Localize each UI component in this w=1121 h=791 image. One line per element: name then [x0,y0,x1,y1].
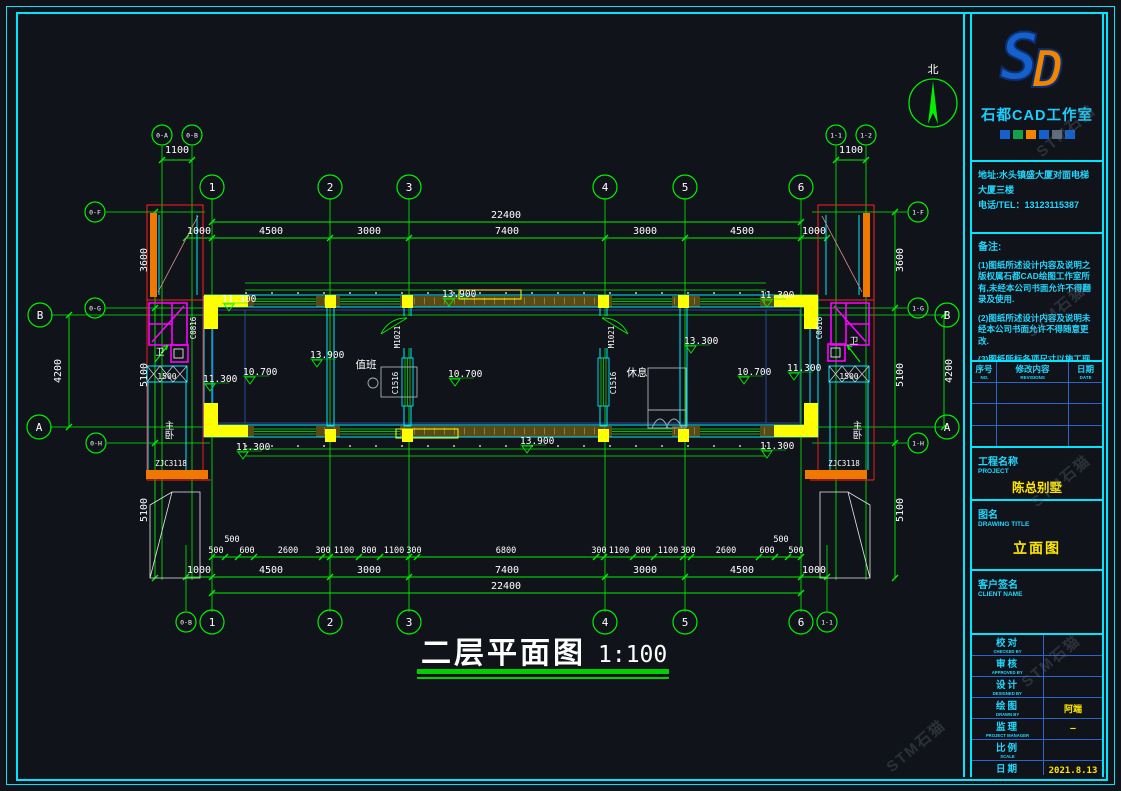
svg-text:11.300: 11.300 [760,441,795,452]
svg-text:1100: 1100 [384,546,404,556]
svg-text:北: 北 [928,63,939,76]
svg-text:300: 300 [406,546,421,556]
svg-text:4: 4 [602,181,609,194]
svg-text:0-B: 0-B [186,132,198,140]
svg-text:4: 4 [602,616,609,629]
svg-text:1500: 1500 [157,372,176,381]
svg-text:1100: 1100 [609,546,629,556]
svg-text:ZJC3118: ZJC3118 [155,459,187,468]
signoff-row-date: 日期DATE 2021.8.13 [972,760,1102,775]
svg-text:7400: 7400 [495,565,519,576]
svg-text:3000: 3000 [357,565,381,576]
svg-text:D: D [1031,40,1063,97]
svg-text:A: A [36,421,43,434]
svg-text:1100: 1100 [334,546,354,556]
svg-text:3600: 3600 [139,248,150,272]
svg-text:M1021: M1021 [393,326,402,349]
svg-text:1100: 1100 [658,546,678,556]
rev-col-date: 日期 [1077,363,1094,375]
svg-text:500: 500 [208,546,223,556]
svg-text:A: A [944,421,951,434]
svg-text:2600: 2600 [278,546,298,556]
svg-text:卫: 卫 [849,336,858,346]
drawing-title-label: 图名 [978,510,998,521]
svg-text:22400: 22400 [491,210,521,221]
svg-text:1-1: 1-1 [821,619,833,627]
notes-section: 备注: (1)图纸所述设计内容及说明之版权属石都CAD绘图工作室所有,未经本公司… [972,232,1102,360]
svg-text:0-F: 0-F [89,209,101,217]
svg-text:300: 300 [680,546,695,556]
notes-title: 备注: [978,242,1098,254]
drawing-title: 二层平面图 1:100 [417,637,669,679]
studio-phone: 电话/TEL：13123115387 [978,198,1097,213]
svg-text:13.900: 13.900 [520,436,555,447]
floor-plan-drawing: 1 2 3 4 5 6 1 2 3 4 5 6 B A B A 0-A 0-B … [0,0,970,791]
rev-row-empty [972,425,1102,446]
svg-text:1-F: 1-F [912,209,924,217]
svg-text:1-G: 1-G [912,305,924,313]
project-section: 工程名称 PROJECT 陈总别墅 [972,446,1102,499]
svg-text:5100: 5100 [139,498,150,522]
svg-text:主卧: 主卧 [163,420,175,441]
signoff-row-drawn: 绘图DRAWN BY 阿端 [972,697,1102,718]
revision-table: 序号NO. 修改内容REVISIONS 日期DATE [972,360,1102,446]
svg-text:C0816: C0816 [815,316,824,339]
studio-badges [972,130,1102,139]
signoff-row-scale: 比例SCALE [972,739,1102,760]
note-2: (2)图纸所述设计内容及说明未经本公司书面允许不得随意更改. [978,313,1098,348]
svg-text:5100: 5100 [895,498,906,522]
cad-sheet: { "page": { "watermark": "STM石猫" }, "nor… [0,0,1121,791]
svg-text:C0816: C0816 [189,316,198,339]
svg-text:13.900: 13.900 [442,289,477,300]
svg-text:1: 1 [209,181,216,194]
svg-text:5100: 5100 [895,363,906,387]
logo-section: S D 石都CAD工作室 [972,13,1102,160]
rev-row-empty [972,403,1102,424]
svg-text:1000: 1000 [187,565,211,576]
svg-text:7400: 7400 [495,226,519,237]
project-label: 工程名称 [978,457,1018,468]
drawing-name-section: 图名 DRAWING TITLE 立面图 [972,499,1102,569]
svg-text:1000: 1000 [187,226,211,237]
client-section: 客户签名 CLIENT NAME [972,569,1102,633]
svg-text:4200: 4200 [53,359,64,383]
svg-text:1000: 1000 [802,226,826,237]
svg-text:1100: 1100 [839,145,863,156]
svg-text:800: 800 [635,546,650,556]
note-1: (1)图纸所述设计内容及说明之版权属石都CAD绘图工作室所有,未经本公司书面允许… [978,260,1098,306]
svg-text:22400: 22400 [491,581,521,592]
svg-text:11.300: 11.300 [787,363,822,374]
svg-text:3000: 3000 [633,565,657,576]
svg-text:5: 5 [682,616,689,629]
svg-text:300: 300 [591,546,606,556]
drawing-name: 立面图 [972,538,1102,558]
svg-text:B: B [944,309,951,322]
svg-text:500: 500 [788,546,803,556]
svg-text:11.300: 11.300 [236,442,271,453]
svg-text:6: 6 [798,181,805,194]
svg-text:主卧: 主卧 [851,420,863,441]
signoff-table: 校对CHECKED BY 审核APPROVED BY 设计DESIGNED BY… [972,633,1102,775]
signoff-row-checked: 校对CHECKED BY [972,635,1102,655]
svg-text:6: 6 [798,616,805,629]
svg-text:C1516: C1516 [391,371,400,394]
svg-text:1100: 1100 [165,145,189,156]
dimension-text-vertical: 3600 5100 5100 4200 3600 5100 5100 4200 … [53,248,955,522]
svg-text:6800: 6800 [496,546,516,556]
svg-text:800: 800 [361,546,376,556]
svg-text:1: 1 [209,616,216,629]
svg-text:1:100: 1:100 [598,642,667,668]
svg-text:500: 500 [773,535,788,545]
svg-text:300: 300 [315,546,330,556]
svg-text:2600: 2600 [716,546,736,556]
svg-text:4500: 4500 [259,226,283,237]
studio-address-line1: 地址:水头镇盛大厦对面电梯 [978,168,1097,183]
svg-text:11.300: 11.300 [222,294,257,305]
north-arrow: 北 [909,63,957,127]
svg-text:2: 2 [327,616,334,629]
svg-text:3000: 3000 [357,226,381,237]
svg-text:5: 5 [682,181,689,194]
main-building [204,283,818,456]
svg-text:3600: 3600 [895,248,906,272]
svg-text:C1516: C1516 [609,371,618,394]
svg-text:休息: 休息 [627,366,648,379]
svg-text:10.700: 10.700 [243,367,278,378]
svg-text:4500: 4500 [730,565,754,576]
dimension-ticks [66,157,947,596]
svg-text:0-A: 0-A [156,132,168,140]
address-section: 地址:水头镇盛大厦对面电梯 大厦三楼 电话/TEL：13123115387 [972,160,1102,232]
svg-text:10.700: 10.700 [448,369,483,380]
project-name: 陈总别墅 [972,477,1102,496]
svg-text:600: 600 [239,546,254,556]
rev-col-content: 修改内容 [1015,363,1049,375]
svg-text:13.300: 13.300 [684,336,719,347]
svg-text:11.300: 11.300 [760,290,795,301]
svg-text:M1021: M1021 [607,326,616,349]
svg-text:3000: 3000 [633,226,657,237]
right-wing [805,205,874,578]
svg-text:3: 3 [406,181,413,194]
svg-text:二层平面图: 二层平面图 [421,637,586,670]
svg-text:ZJC3118: ZJC3118 [828,459,860,468]
svg-text:5100: 5100 [139,363,150,387]
dimension-text-detail: 500 500 600 2600 300 1100 800 1100 300 6… [208,535,803,556]
svg-text:0-H: 0-H [90,440,102,448]
svg-text:1500: 1500 [839,372,858,381]
signoff-row-manager: 监理PROJECT MANAGER — [972,718,1102,739]
svg-text:11.300: 11.300 [203,374,238,385]
svg-text:4200: 4200 [944,359,955,383]
svg-text:500: 500 [224,535,239,545]
svg-text:B: B [37,309,44,322]
svg-text:2: 2 [327,181,334,194]
client-label: 客户签名 [978,580,1018,591]
svg-text:0-G: 0-G [89,305,101,313]
svg-text:1-H: 1-H [912,440,924,448]
studio-address-line2: 大厦三楼 [978,183,1097,198]
svg-text:0-B: 0-B [180,619,192,627]
studio-logo: S D [972,13,1102,97]
svg-text:10.700: 10.700 [737,367,772,378]
studio-name: 石都CAD工作室 [972,104,1102,125]
svg-text:1-2: 1-2 [860,132,872,140]
svg-text:600: 600 [759,546,774,556]
rev-col-no: 序号 [975,363,992,375]
left-wing [146,205,211,578]
title-block-panel: S D 石都CAD工作室 地址:水头镇盛大厦对面电梯 大厦三楼 电话/TEL：1… [970,13,1104,777]
signoff-row-approved: 审核APPROVED BY [972,655,1102,676]
svg-text:1-1: 1-1 [830,132,842,140]
svg-text:3: 3 [406,616,413,629]
svg-text:值班: 值班 [356,358,377,371]
svg-text:卫: 卫 [155,347,164,357]
rev-row-empty [972,382,1102,403]
svg-text:4500: 4500 [259,565,283,576]
svg-text:13.900: 13.900 [310,350,345,361]
svg-text:4500: 4500 [730,226,754,237]
svg-text:1000: 1000 [802,565,826,576]
signoff-row-designed: 设计DESIGNED BY [972,676,1102,697]
